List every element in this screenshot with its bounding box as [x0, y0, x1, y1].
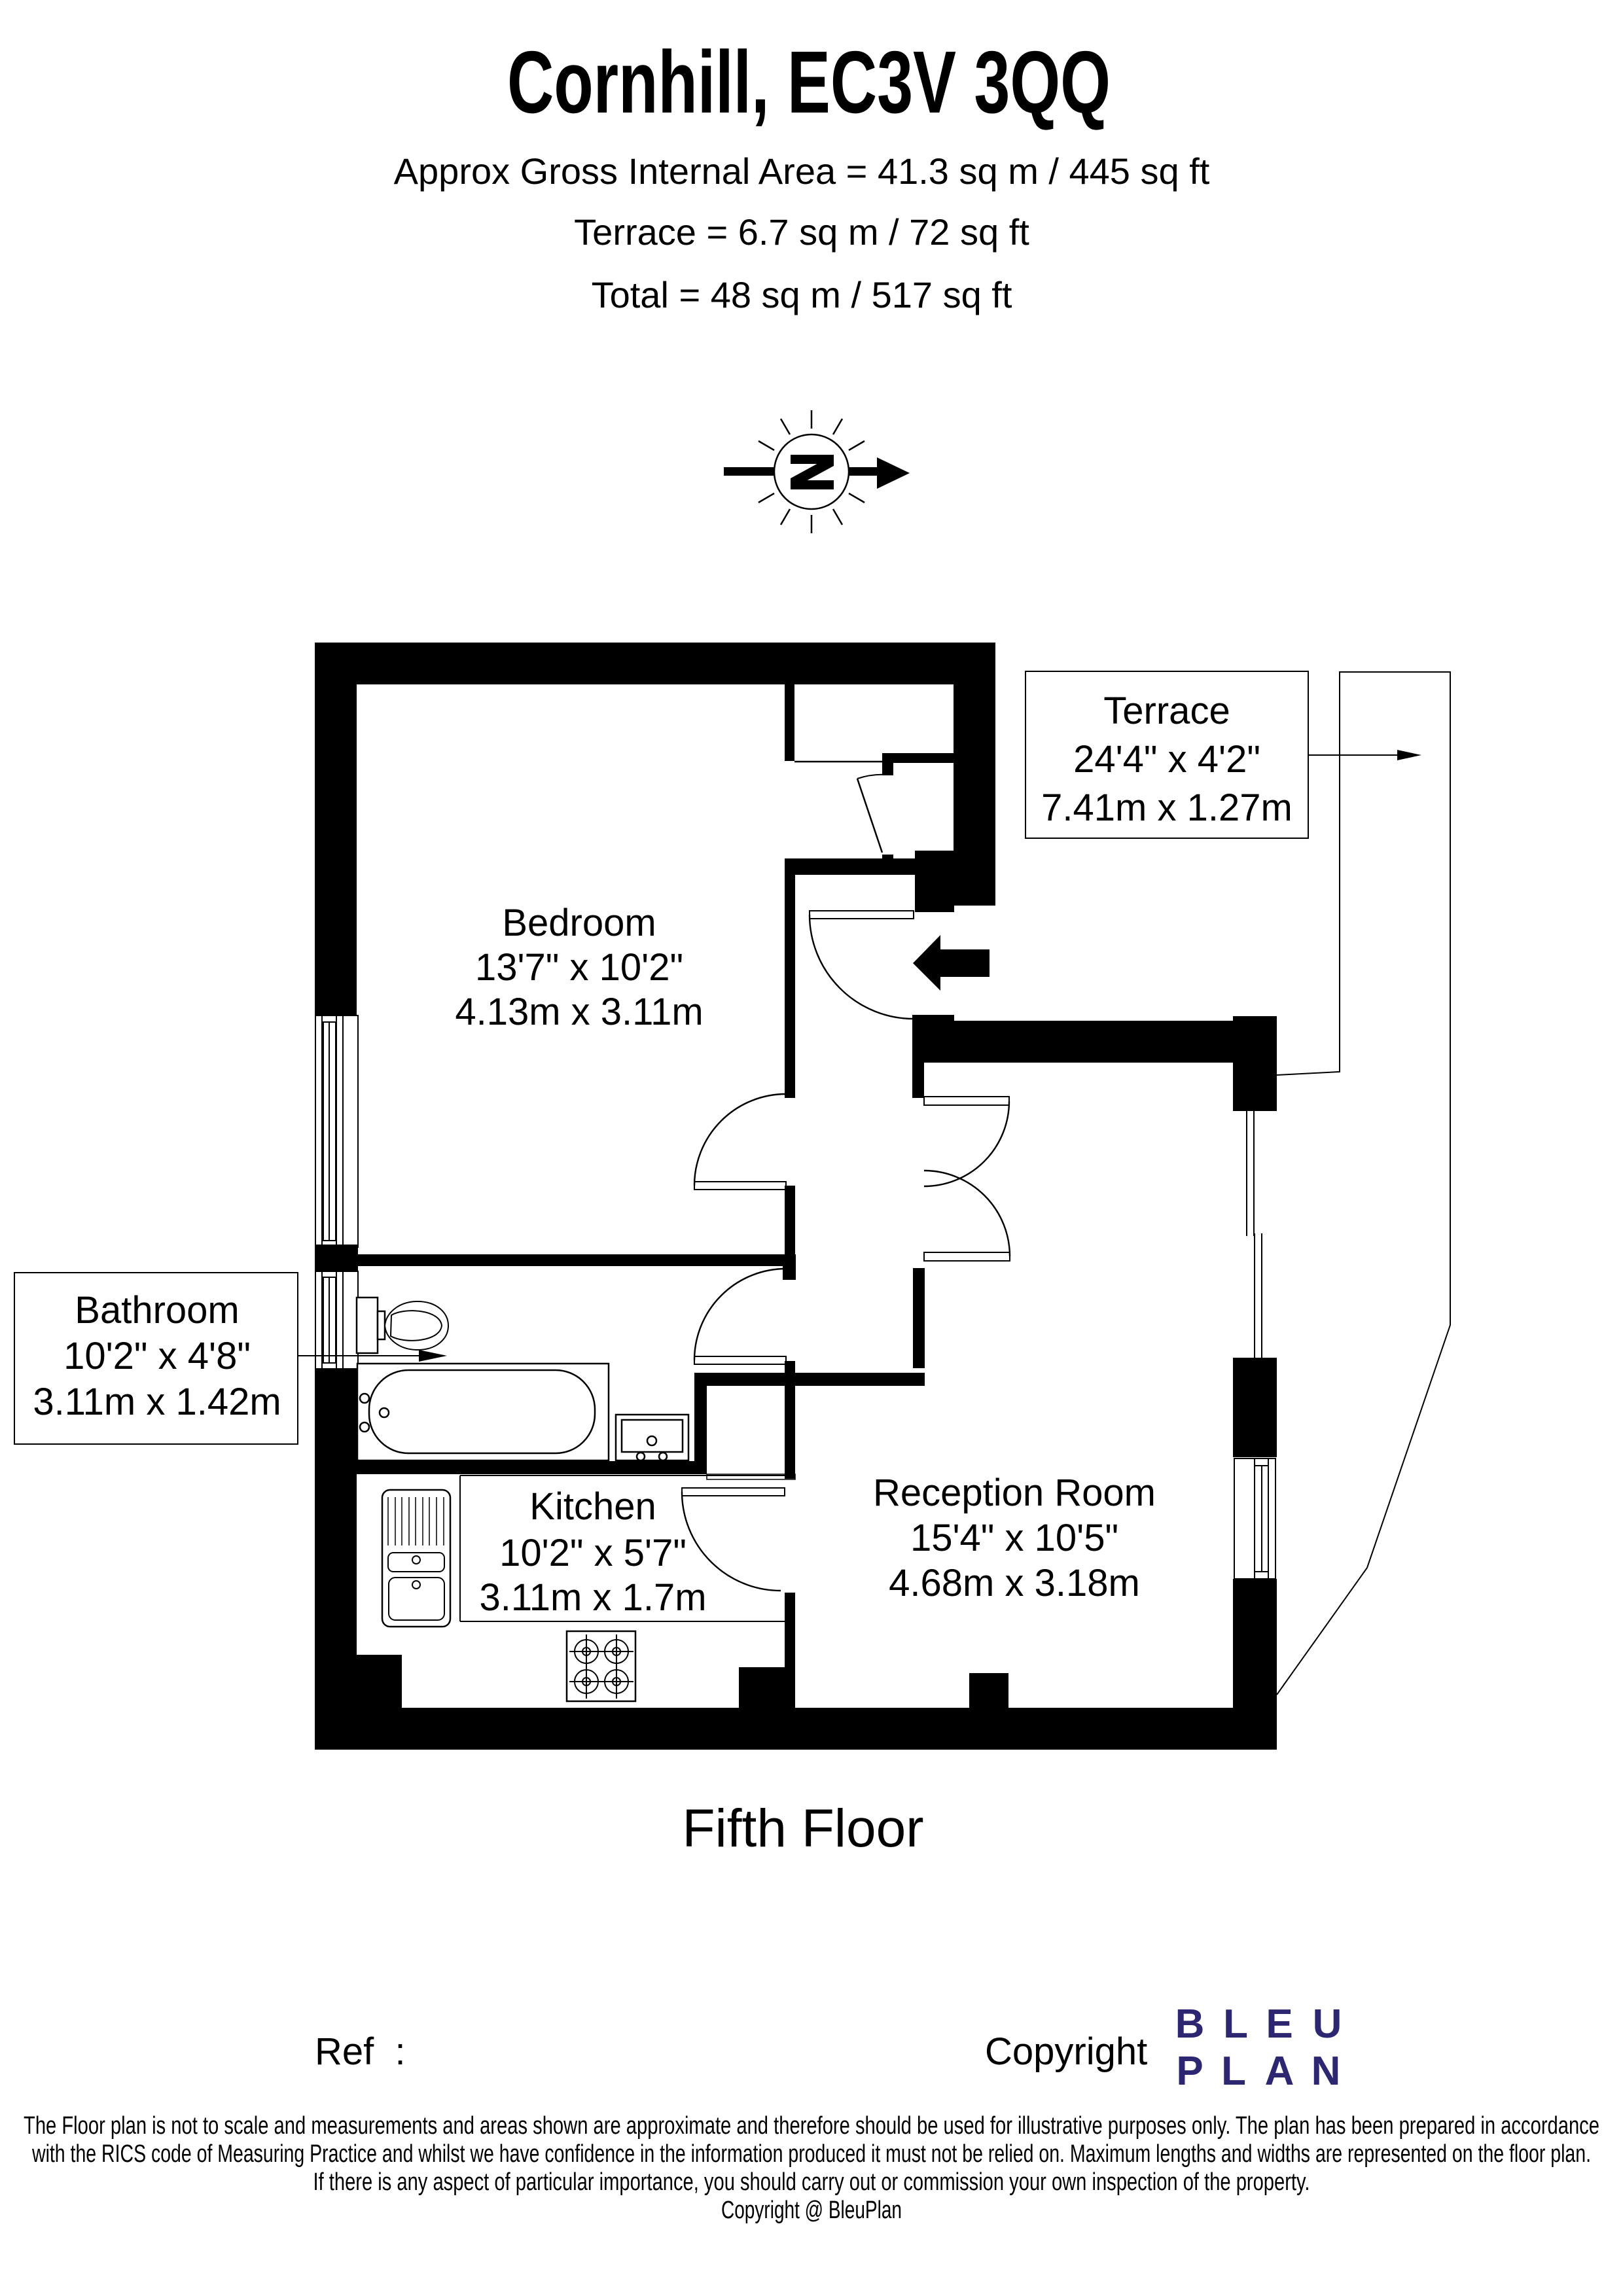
svg-text:13'7" x 10'2": 13'7" x 10'2"	[475, 946, 683, 989]
svg-text:Bedroom: Bedroom	[502, 902, 656, 944]
svg-text:B: B	[1175, 2002, 1205, 2047]
svg-text:P: P	[1176, 2049, 1203, 2094]
svg-text:Cornhill, EC3V 3QQ: Cornhill, EC3V 3QQ	[507, 33, 1111, 132]
svg-text:Total = 48 sq m / 517 sq ft: Total = 48 sq m / 517 sq ft	[592, 274, 1012, 315]
svg-text:4.13m x 3.11m: 4.13m x 3.11m	[455, 991, 703, 1033]
svg-text:Terrace = 6.7 sq m / 72 sq ft: Terrace = 6.7 sq m / 72 sq ft	[574, 211, 1029, 253]
svg-text:A: A	[1265, 2049, 1294, 2094]
svg-text:Ref :: Ref :	[315, 2030, 406, 2073]
svg-text:with the RICS code of Measurin: with the RICS code of Measuring Practice…	[31, 2140, 1591, 2168]
svg-text:Bathroom: Bathroom	[75, 1289, 239, 1332]
svg-text:Fifth Floor: Fifth Floor	[682, 1799, 923, 1858]
svg-text:E: E	[1266, 2002, 1293, 2047]
svg-text:3.11m x 1.7m: 3.11m x 1.7m	[479, 1576, 706, 1619]
svg-text:Copyright @ BleuPlan: Copyright @ BleuPlan	[721, 2197, 902, 2224]
svg-text:24'4" x 4'2": 24'4" x 4'2"	[1073, 738, 1260, 781]
svg-text:L: L	[1221, 2049, 1246, 2094]
svg-text:Approx Gross Internal Area = 4: Approx Gross Internal Area = 41.3 sq m /…	[394, 150, 1210, 192]
svg-text:Reception Room: Reception Room	[873, 1472, 1156, 1514]
svg-text:15'4" x 10'5": 15'4" x 10'5"	[910, 1517, 1118, 1559]
svg-text:The Floor plan is not to scale: The Floor plan is not to scale and measu…	[24, 2112, 1599, 2140]
svg-text:N: N	[1311, 2049, 1341, 2094]
svg-text:4.68m x 3.18m: 4.68m x 3.18m	[889, 1562, 1140, 1604]
svg-text:10'2" x 5'7": 10'2" x 5'7"	[499, 1532, 687, 1574]
svg-text:3.11m x 1.42m: 3.11m x 1.42m	[33, 1381, 281, 1423]
svg-text:7.41m x 1.27m: 7.41m x 1.27m	[1041, 786, 1293, 829]
svg-text:If there is any aspect of part: If there is any aspect of particular imp…	[313, 2168, 1310, 2196]
svg-text:Copyright: Copyright	[985, 2030, 1147, 2073]
svg-text:Terrace: Terrace	[1103, 690, 1230, 732]
svg-text:L: L	[1223, 2002, 1248, 2047]
svg-text:Kitchen: Kitchen	[529, 1485, 656, 1528]
svg-text:U: U	[1313, 2002, 1342, 2047]
svg-text:10'2" x 4'8": 10'2" x 4'8"	[63, 1335, 251, 1377]
